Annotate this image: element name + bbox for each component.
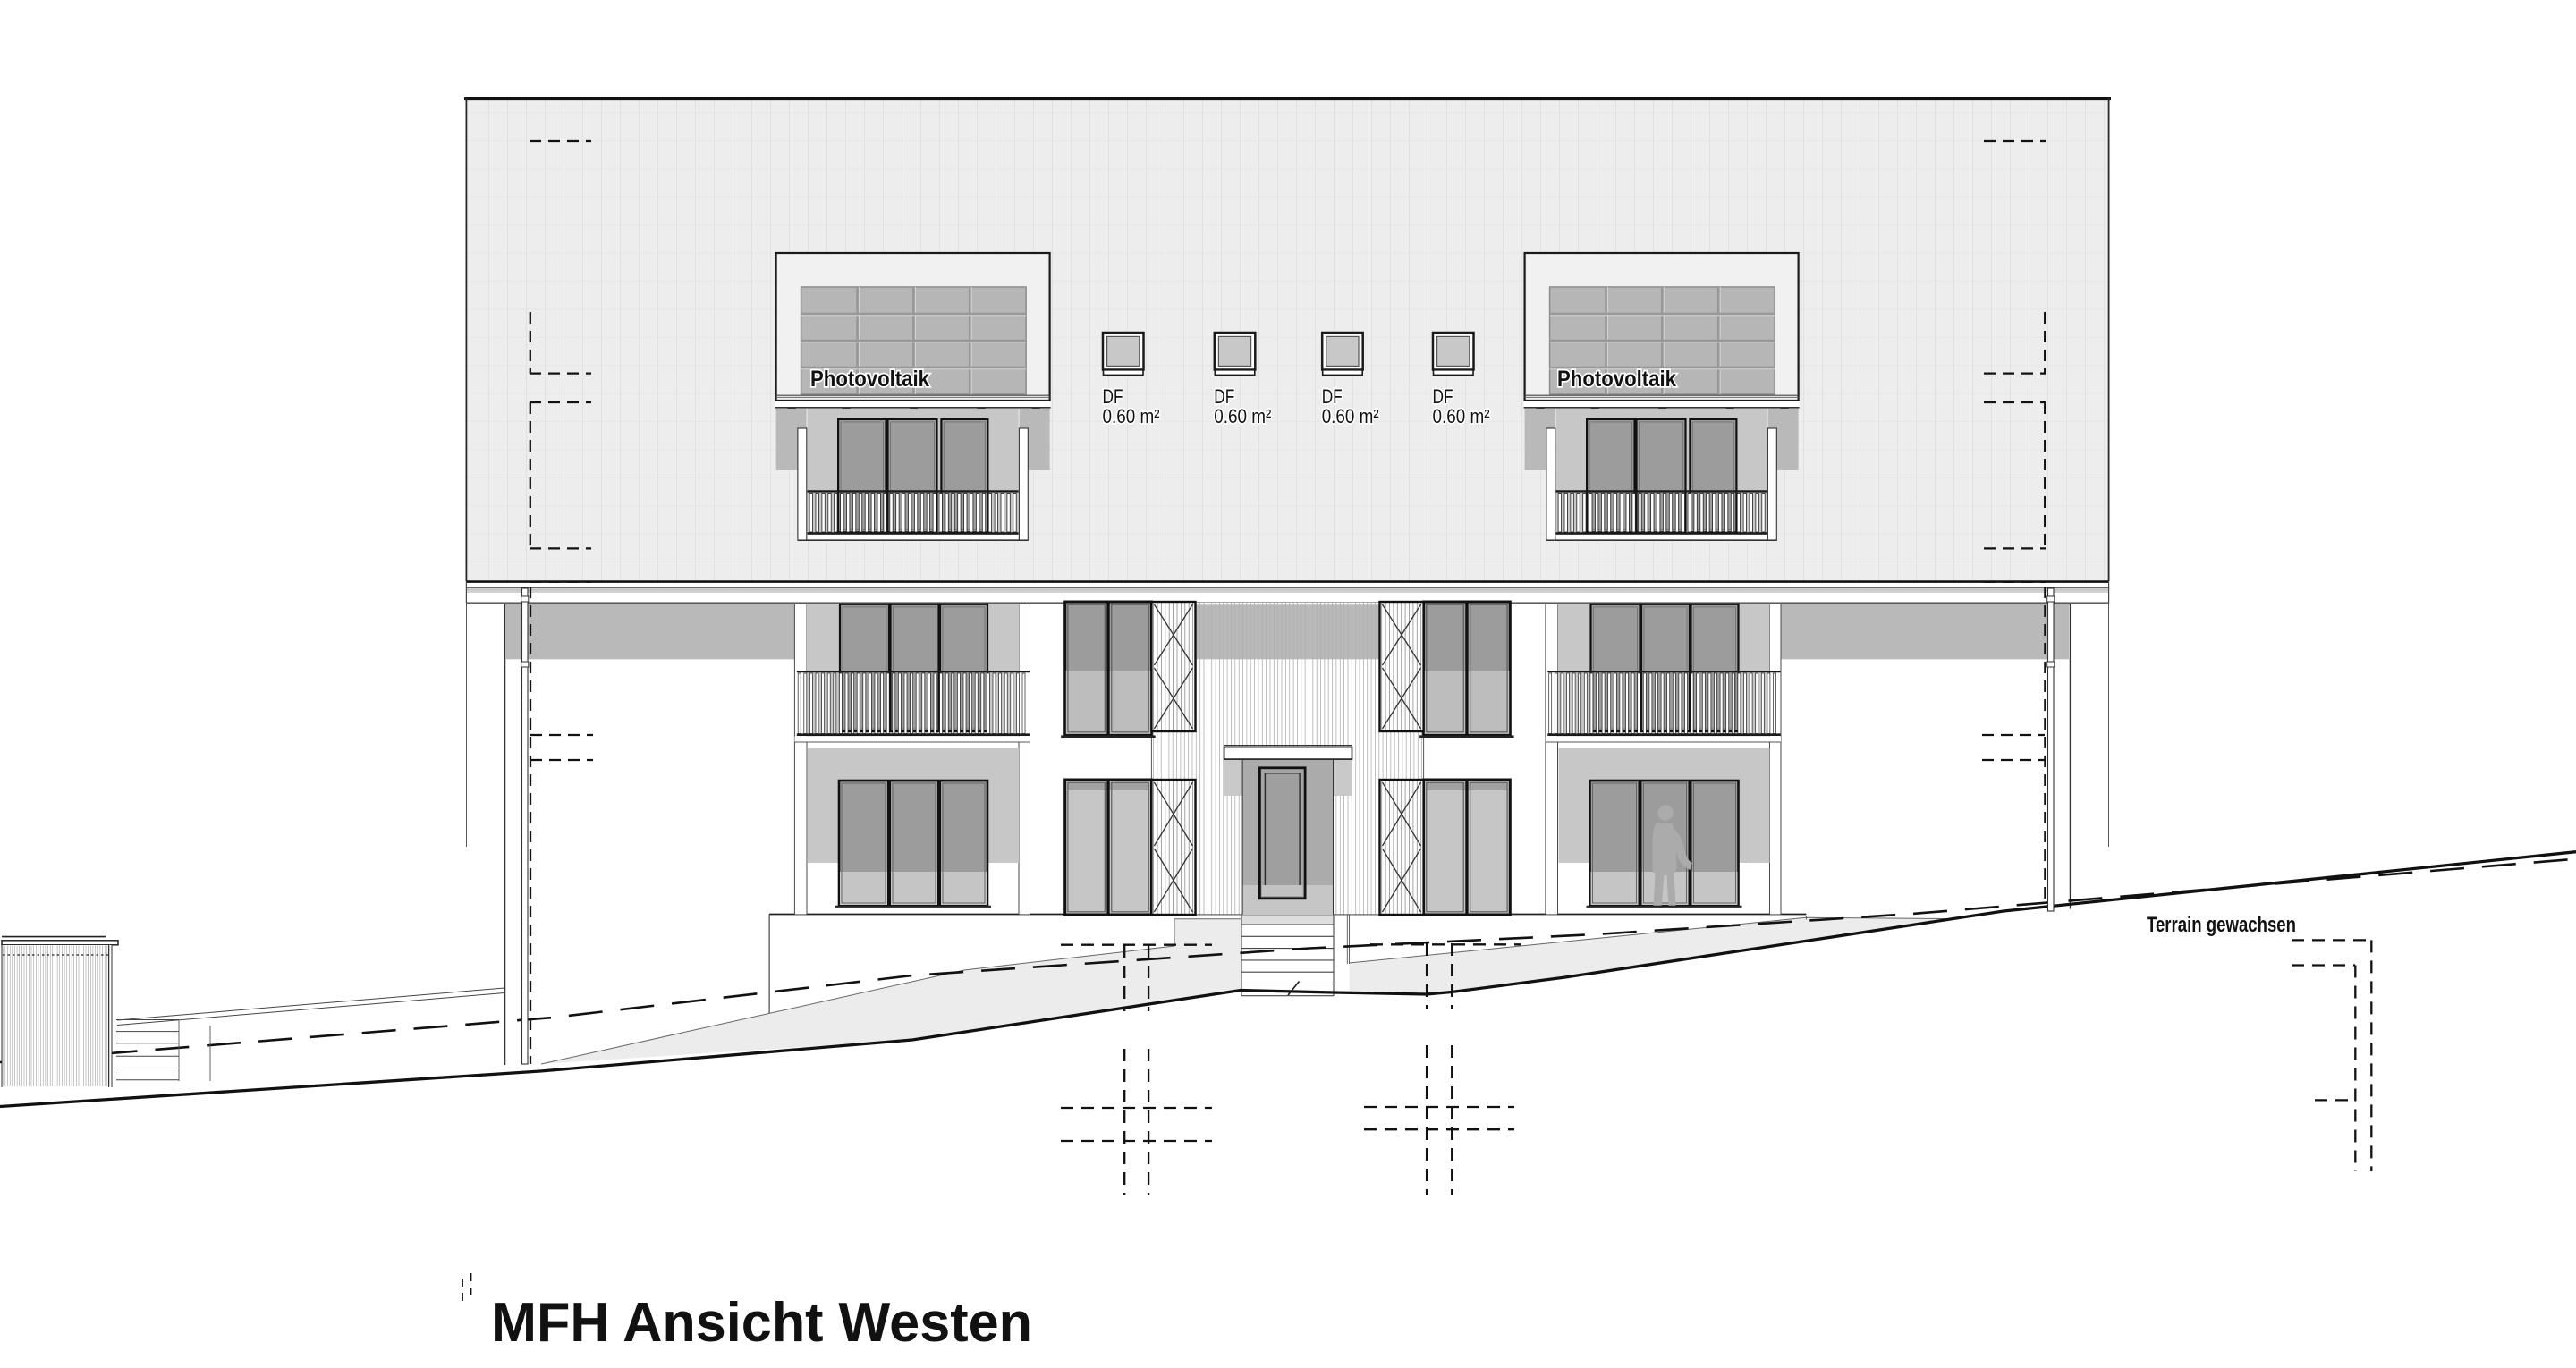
svg-text:MFH Ansicht Westen: MFH Ansicht Westen xyxy=(491,1292,1032,1354)
svg-text:0.60 m²: 0.60 m² xyxy=(1433,405,1490,427)
svg-text:0.60 m²: 0.60 m² xyxy=(1214,405,1271,427)
svg-text:0.60 m²: 0.60 m² xyxy=(1103,405,1160,427)
svg-text:Photovoltaik: Photovoltaik xyxy=(1557,367,1676,392)
svg-text:Photovoltaik: Photovoltaik xyxy=(810,367,929,392)
svg-text:0.60 m²: 0.60 m² xyxy=(1322,405,1379,427)
svg-text:Terrain gewachsen: Terrain gewachsen xyxy=(2147,913,2296,937)
